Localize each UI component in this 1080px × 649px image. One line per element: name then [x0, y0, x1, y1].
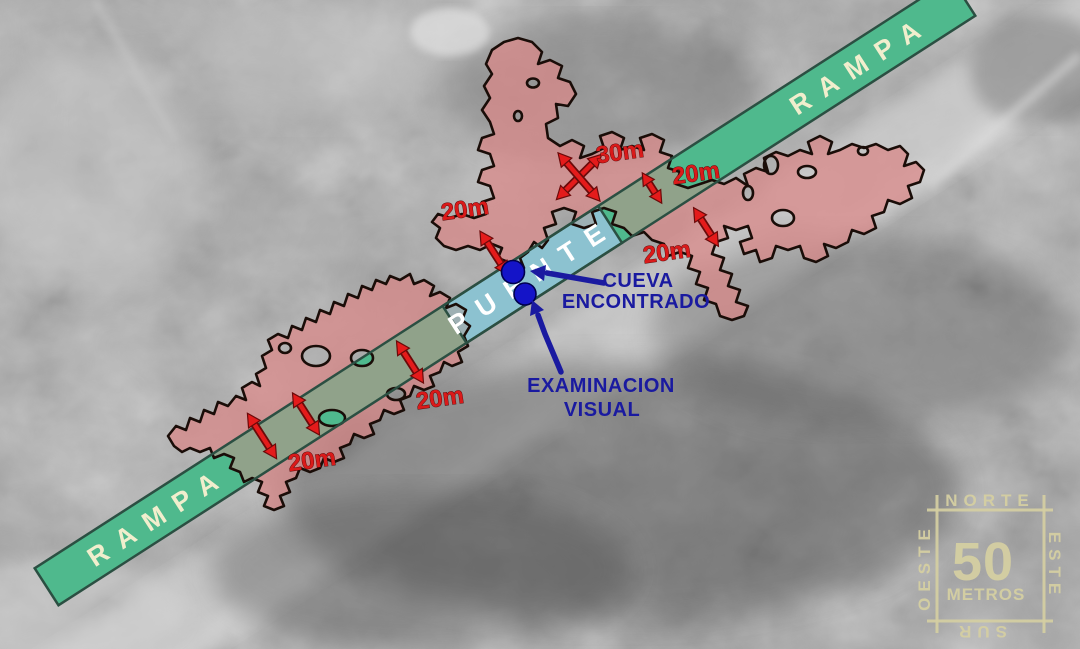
compass-south-label: SUR [953, 622, 1007, 641]
compass-north-label: NORTE [945, 491, 1035, 510]
visual-exam-label-line2: VISUAL [564, 399, 640, 421]
scale-value: 50 [952, 532, 1014, 592]
scale-unit: METROS [947, 585, 1026, 604]
aerial-map: RAMPA PUENTE RAMPA [0, 0, 1080, 649]
map-canvas: RAMPA PUENTE RAMPA [0, 0, 1080, 649]
cave-found-dot [502, 261, 525, 284]
visual-exam-label-line1: EXAMINACION [527, 375, 675, 397]
compass-west-label: OESTE [915, 523, 934, 611]
cave-found-label-line2: ENCONTRADO [562, 291, 710, 313]
compass-east-label: ESTE [1045, 532, 1064, 600]
cave-found-label-line1: CUEVA [602, 270, 673, 292]
